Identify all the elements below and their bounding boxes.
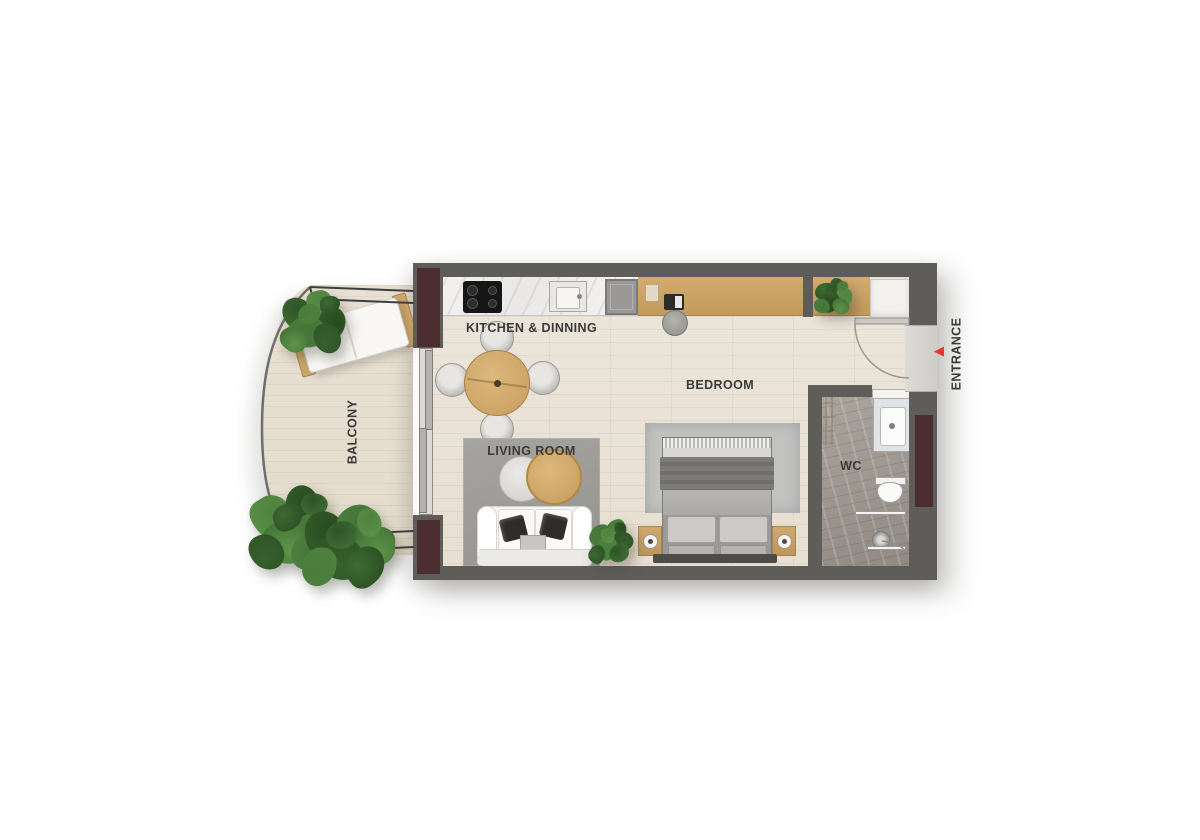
burner-icon	[467, 298, 478, 309]
nightstand	[772, 526, 796, 556]
wc-wall-top	[808, 385, 872, 397]
plant	[300, 505, 392, 583]
desk-counter	[638, 277, 803, 316]
structural-column	[417, 520, 440, 574]
wc-sink	[873, 398, 910, 452]
fridge-cabinet	[870, 279, 910, 320]
sofa	[477, 506, 592, 566]
bed-headboard	[653, 554, 777, 563]
dining-table	[464, 350, 530, 416]
lamp-icon	[643, 534, 658, 549]
entrance-label: ENTRANCE	[949, 318, 963, 391]
entrance-niche	[905, 325, 937, 392]
entrance-arrow-icon: ◀	[934, 344, 944, 357]
towel-bar	[855, 511, 906, 515]
sink-basin	[556, 287, 580, 309]
wall-stub	[803, 277, 813, 317]
bed-blanket	[660, 457, 774, 490]
wc-wall-left	[808, 385, 822, 566]
faucet-icon	[577, 294, 582, 299]
balcony-label-wrap: BALCONY	[322, 388, 382, 476]
laptop	[664, 294, 684, 310]
bed-pillow	[667, 516, 716, 543]
wall-right-upper	[909, 263, 937, 325]
wall-top	[413, 263, 937, 277]
shower-bar	[867, 546, 906, 550]
bedroom-label: BEDROOM	[670, 378, 770, 392]
wall-bottom	[413, 566, 937, 580]
sofa-back	[479, 549, 590, 566]
plant-leaf	[301, 547, 338, 588]
balcony-label: BALCONY	[345, 400, 359, 465]
floor-plan: KITCHEN & DINNING BEDROOM LIVING ROOM WC…	[0, 0, 1200, 840]
dishwasher	[605, 279, 638, 315]
bed-pillow	[719, 516, 768, 543]
wc-label: WC	[836, 459, 866, 473]
desk-notepad	[645, 284, 659, 302]
structural-column	[915, 415, 933, 507]
dining-chair	[526, 361, 560, 395]
burner-icon	[467, 285, 478, 296]
burner-icon	[488, 299, 497, 308]
toilet	[875, 477, 906, 504]
table-center	[494, 380, 501, 387]
bed-throw	[663, 438, 771, 448]
plant	[814, 279, 852, 313]
nightstand	[638, 526, 662, 556]
kitchen-sink	[549, 281, 587, 312]
burner-icon	[488, 286, 497, 295]
bed	[662, 437, 772, 562]
kitchen-dining-label: KITCHEN & DINNING	[466, 321, 597, 335]
desk-chair	[662, 310, 688, 336]
structural-column	[417, 268, 440, 347]
sliding-door-panel	[425, 350, 433, 430]
bed-fold	[663, 448, 771, 457]
sliding-door-panel	[419, 428, 427, 513]
lamp-icon	[777, 534, 792, 549]
toilet-bowl	[877, 482, 903, 503]
plant	[280, 292, 346, 352]
plant	[588, 520, 632, 564]
bed-sheet	[663, 490, 771, 515]
cooktop	[463, 281, 502, 313]
living-room-label: LIVING ROOM	[463, 444, 600, 458]
faucet-icon	[889, 423, 895, 429]
